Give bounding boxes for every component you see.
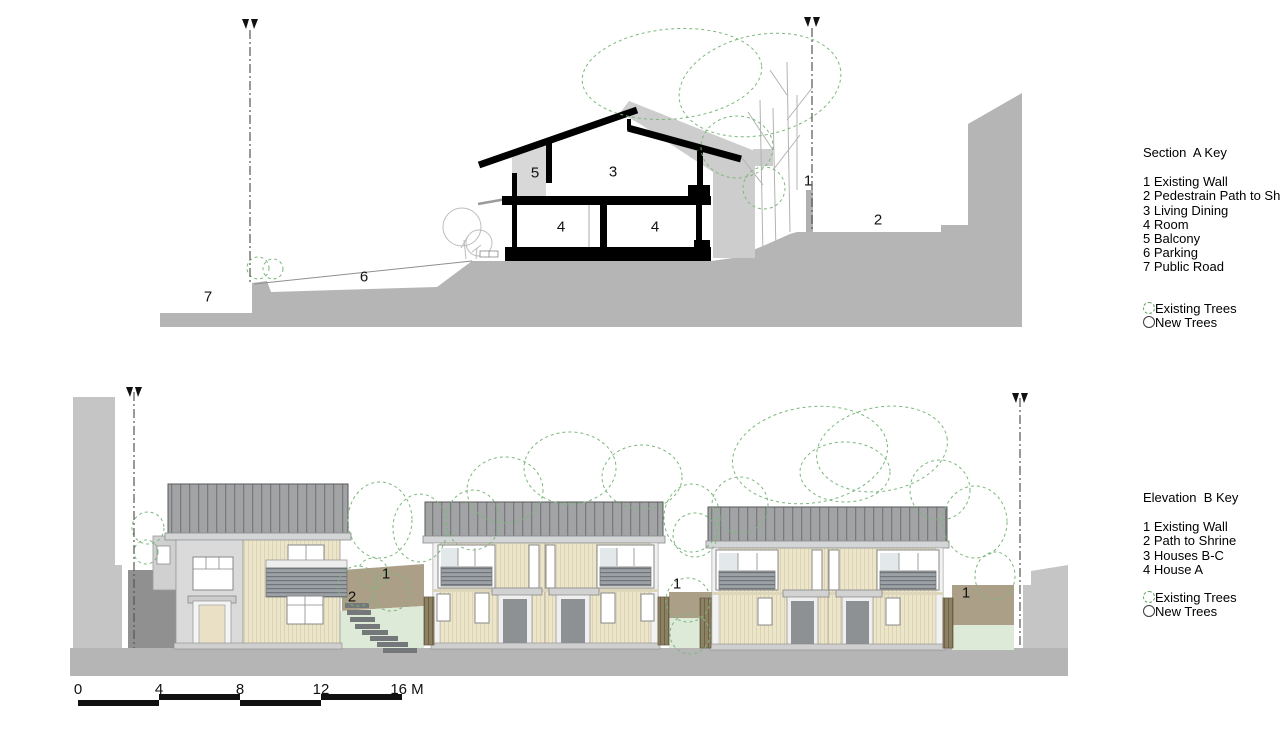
architectural-drawing-sheet: 765344121211 0481216 M Section A Key 1 E… xyxy=(0,0,1280,740)
elevation-label-2-path-to-shrine: 2 xyxy=(348,589,356,606)
legend-label: New Trees xyxy=(1155,315,1217,330)
new-tree-icon xyxy=(1143,316,1155,328)
key-item: 1 Existing Wall xyxy=(1143,175,1280,189)
drawings-canvas xyxy=(0,0,1280,740)
key-item: 2 Pedestrain Path to Shrine xyxy=(1143,189,1280,203)
elevation-key: Elevation B Key 1 Existing Wall 2 Path t… xyxy=(1143,491,1280,619)
elevation-label-1-existing-wall-a: 1 xyxy=(382,566,390,583)
key-item: 5 Balcony xyxy=(1143,232,1280,246)
elevation-tree-legend: Existing Trees New Trees xyxy=(1143,591,1280,619)
scale-tick-8: 8 xyxy=(236,681,244,698)
scale-tick-12: 12 xyxy=(313,681,330,698)
section-label-4-room-left: 4 xyxy=(557,219,565,236)
section-label-1-existing-wall: 1 xyxy=(804,173,812,190)
elevation-house-a xyxy=(128,484,351,649)
legend-new-trees: New Trees xyxy=(1143,316,1280,330)
legend-label: Existing Trees xyxy=(1155,590,1237,605)
elevation-label-1-existing-wall-c: 1 xyxy=(962,585,970,602)
existing-tree-icon xyxy=(1143,302,1155,314)
key-item: 3 Living Dining xyxy=(1143,204,1280,218)
section-key-items: 1 Existing Wall 2 Pedestrain Path to Shr… xyxy=(1143,175,1280,274)
scale-tick-4: 4 xyxy=(155,681,163,698)
key-item: 6 Parking xyxy=(1143,246,1280,260)
elevation-key-items: 1 Existing Wall 2 Path to Shrine 3 House… xyxy=(1143,520,1280,577)
section-label-3-living-dining: 3 xyxy=(609,164,617,181)
section-label-7-public-road: 7 xyxy=(204,289,212,306)
key-item: 4 Room xyxy=(1143,218,1280,232)
key-item: 4 House A xyxy=(1143,563,1280,577)
elevation-house-b xyxy=(423,502,669,649)
section-marker-right xyxy=(804,17,820,27)
scale-tick-16 M: 16 M xyxy=(390,681,423,698)
existing-tree-icon xyxy=(1143,591,1155,603)
elevation-key-title: Elevation B Key xyxy=(1143,491,1280,505)
scale-tick-0: 0 xyxy=(74,681,82,698)
section-label-4-room-right: 4 xyxy=(651,219,659,236)
legend-label: New Trees xyxy=(1155,604,1217,619)
legend-existing-trees: Existing Trees xyxy=(1143,591,1280,605)
section-marker-left xyxy=(242,19,258,29)
elevation-drawing xyxy=(70,387,1068,706)
key-item: 1 Existing Wall xyxy=(1143,520,1280,534)
section-key-title: Section A Key xyxy=(1143,146,1280,160)
elevation-house-c xyxy=(700,507,953,650)
key-item: 7 Public Road xyxy=(1143,260,1280,274)
section-label-2-pedestrian-path: 2 xyxy=(874,212,882,229)
key-item: 3 Houses B-C xyxy=(1143,549,1280,563)
legend-new-trees: New Trees xyxy=(1143,605,1280,619)
section-drawing xyxy=(160,17,1022,327)
section-label-6-parking: 6 xyxy=(360,269,368,286)
elevation-label-1-existing-wall-b: 1 xyxy=(673,576,681,593)
section-tree-legend: Existing Trees New Trees xyxy=(1143,302,1280,330)
new-tree-icon xyxy=(1143,605,1155,617)
section-label-5-balcony: 5 xyxy=(531,165,539,182)
legend-label: Existing Trees xyxy=(1155,301,1237,316)
section-key: Section A Key 1 Existing Wall 2 Pedestra… xyxy=(1143,146,1280,330)
key-item: 2 Path to Shrine xyxy=(1143,534,1280,548)
legend-existing-trees: Existing Trees xyxy=(1143,302,1280,316)
roof-left-slope xyxy=(479,110,637,165)
